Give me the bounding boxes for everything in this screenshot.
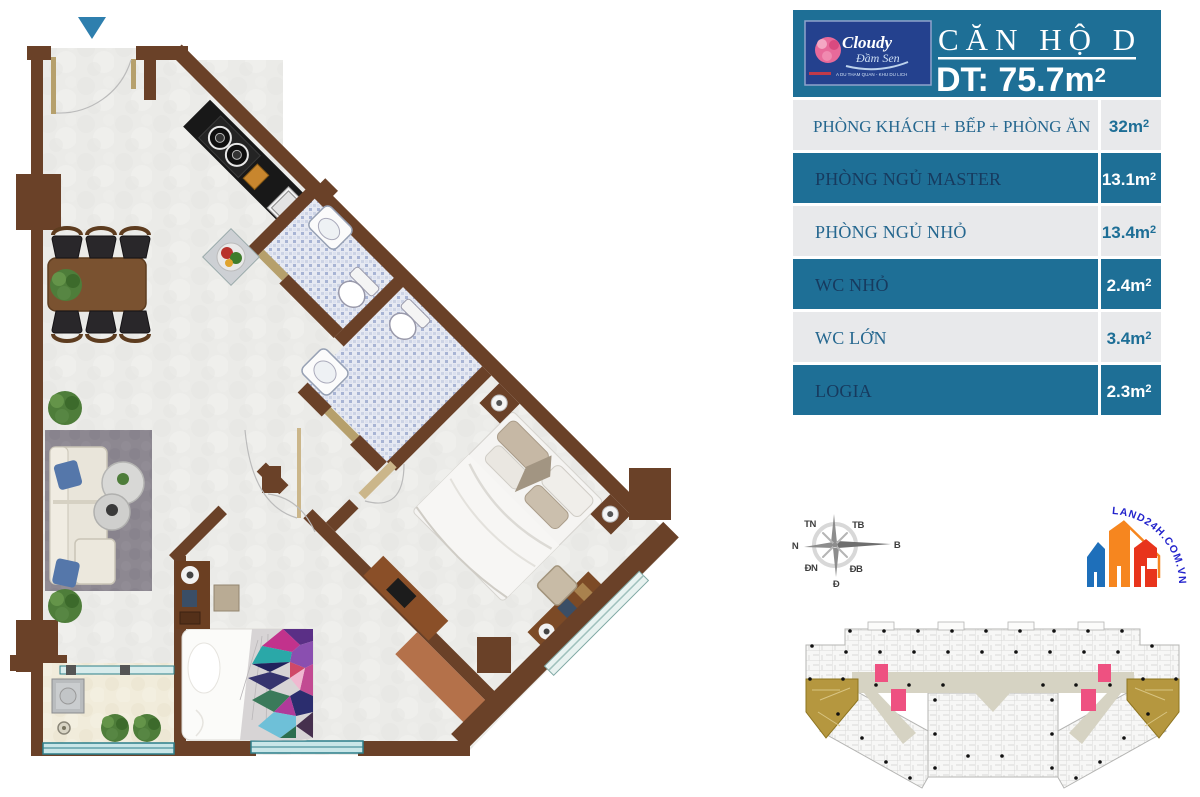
svg-text:Đ: Đ [833, 579, 840, 590]
svg-text:TN: TN [804, 519, 816, 530]
svg-text:TB: TB [852, 520, 864, 531]
svg-text:DT: 75.7m2: DT: 75.7m2 [936, 61, 1106, 99]
svg-text:CĂN HỘ D: CĂN HỘ D [938, 22, 1142, 57]
svg-text:ĐB: ĐB [850, 564, 863, 575]
svg-text:2.4m2: 2.4m2 [1107, 276, 1152, 295]
svg-text:LOGIA: LOGIA [815, 381, 872, 401]
svg-text:WC LỚN: WC LỚN [815, 327, 887, 348]
svg-text:PHÒNG NGỦ MASTER: PHÒNG NGỦ MASTER [815, 168, 1001, 189]
svg-text:Cloudy: Cloudy [842, 33, 893, 52]
svg-text:13.1m2: 13.1m2 [1102, 170, 1156, 189]
svg-text:2.3m2: 2.3m2 [1107, 382, 1152, 401]
svg-text:PHÒNG KHÁCH + BẾP + PHÒNG ĂN: PHÒNG KHÁCH + BẾP + PHÒNG ĂN [813, 117, 1090, 136]
svg-text:Đầm Sen: Đầm Sen [855, 51, 900, 65]
svg-text:A DU THAM QUAN - KHU DU LICH: A DU THAM QUAN - KHU DU LICH [836, 72, 907, 77]
svg-text:3.4m2: 3.4m2 [1107, 329, 1152, 348]
svg-text:ĐN: ĐN [805, 563, 818, 574]
svg-text:B: B [894, 540, 901, 551]
svg-text:N: N [792, 541, 799, 552]
svg-text:WC NHỎ: WC NHỎ [815, 274, 889, 295]
svg-text:PHÒNG NGỦ NHỎ: PHÒNG NGỦ NHỎ [815, 221, 967, 242]
svg-text:13.4m2: 13.4m2 [1102, 223, 1156, 242]
